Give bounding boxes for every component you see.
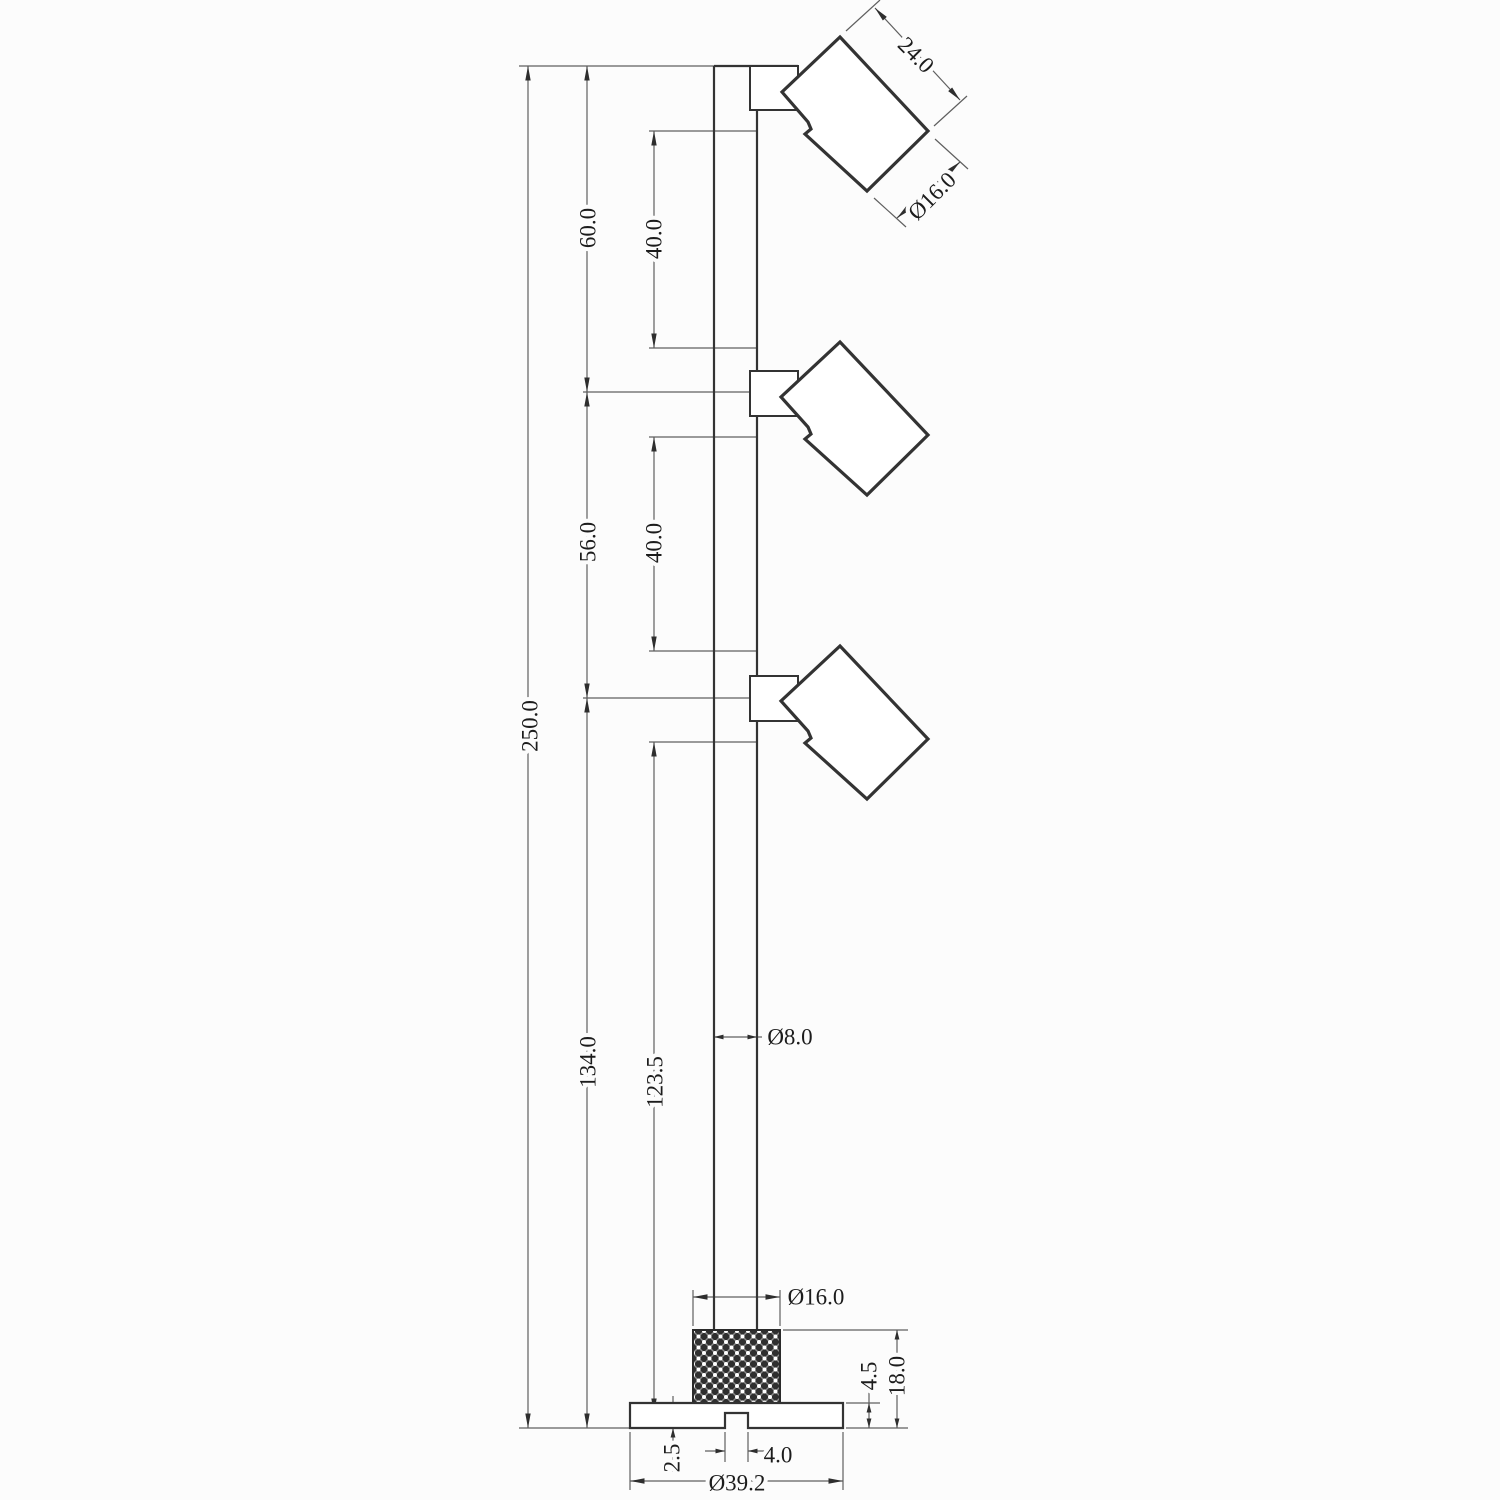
dim-knurl-diameter-label: Ø16.0	[788, 1285, 845, 1310]
dim-head-gap-mid-label: 40.0	[642, 523, 667, 563]
dim-head-gap-top-label: 40.0	[642, 219, 667, 259]
technical-drawing-canvas: 250.0 60.0 40.0 56.0 40.0 134.0 123.5 Ø8…	[0, 0, 1500, 1500]
dim-pole-diameter-label: Ø8.0	[767, 1025, 812, 1050]
dim-plate-thickness-label: 4.5	[857, 1362, 882, 1391]
dim-overall-height-label: 250.0	[518, 700, 543, 752]
dim-base-height-label: 18.0	[885, 1356, 910, 1396]
lamp-dimension-drawing: 250.0 60.0 40.0 56.0 40.0 134.0 123.5 Ø8…	[0, 0, 1500, 1500]
dim-plate-step-label: 2.5	[660, 1444, 685, 1473]
drawing-background	[0, 0, 1500, 1500]
dim-base-diameter-label: Ø39.2	[709, 1471, 766, 1496]
dim-mid-section-label: 56.0	[576, 522, 601, 562]
dim-top-section-label: 60.0	[576, 208, 601, 248]
dim-bottom-section-label: 134.0	[576, 1036, 601, 1088]
knurled-collar	[693, 1330, 780, 1403]
dim-slot-width-label: 4.0	[764, 1443, 793, 1468]
dim-pole-exposed-label: 123.5	[643, 1056, 668, 1108]
